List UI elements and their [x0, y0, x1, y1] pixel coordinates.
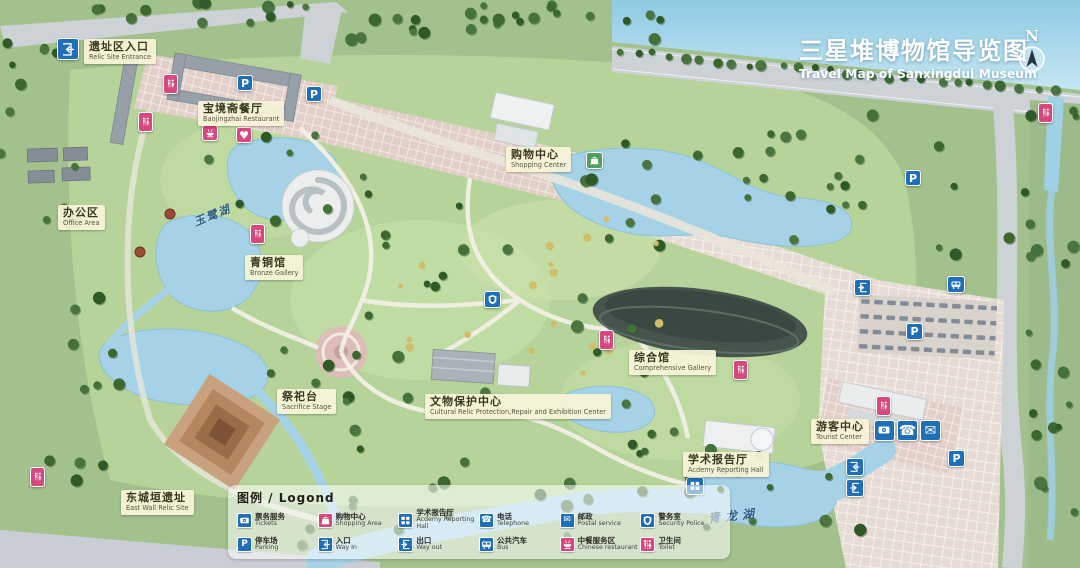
label-shopping-center: 购物中心Shopping Center — [506, 147, 571, 172]
legend-item-restaurant: 中餐服务区Chinese restaurant — [560, 532, 641, 556]
security-icon — [484, 291, 501, 308]
label-east-wall-relic-site-zh: 东城垣遗址 — [126, 492, 189, 505]
way-in-icon — [57, 38, 79, 60]
label-east-wall-relic-site: 东城垣遗址East Wall Relic Site — [121, 490, 194, 515]
label-shopping-center-zh: 购物中心 — [511, 149, 566, 162]
legend-item-en: Tickets — [255, 521, 285, 528]
label-relic-site-entrance-en: Relic Site Entrance — [89, 54, 151, 62]
parking-icon: P — [306, 86, 322, 102]
map-title-zh: 三星堆博物馆导览图 — [799, 31, 1037, 66]
legend-item-text: 票务服务Tickets — [255, 513, 285, 527]
legend-title: 图例 / Logond — [237, 489, 721, 506]
label-office-area-en: Office Area — [63, 220, 100, 228]
label-shopping-center-en: Shopping Center — [511, 162, 566, 170]
label-tourist-center-zh: 游客中心 — [816, 421, 864, 434]
label-bronze-gallery: 青铜馆Bronze Gallery — [245, 255, 303, 280]
legend-item-text: 警务室Security Police — [658, 513, 704, 527]
toilet-icon — [599, 330, 614, 350]
label-tourist-center: 游客中心Tourist Center — [811, 419, 869, 444]
heart-icon: ♥ — [236, 127, 252, 143]
legend-item-en: Toilet — [658, 545, 681, 552]
legend-item-en: Parking — [255, 545, 278, 552]
legend-item-bus: 公共汽车Bus — [479, 532, 560, 556]
parking-icon: P — [237, 75, 253, 91]
legend-items: 票务服务Tickets购物中心Shopping Area学术报告厅Acdemy … — [237, 508, 721, 556]
label-comprehensive-gallery: 综合馆Comprehensive Gallery — [629, 350, 716, 375]
toilet-icon — [640, 537, 655, 552]
toilet-icon — [163, 74, 178, 94]
label-bronze-gallery-zh: 青铜馆 — [250, 257, 298, 270]
label-east-wall-relic-site-en: East Wall Relic Site — [126, 505, 189, 513]
label-relic-site-entrance: 遗址区入口Relic Site Entrance — [84, 39, 156, 64]
north-indicator: N — [1016, 27, 1048, 77]
way-in-icon — [846, 458, 864, 476]
legend-panel: 图例 / Logond 票务服务Tickets购物中心Shopping Area… — [228, 485, 730, 559]
parking-icon: P — [237, 537, 252, 552]
phone-icon: ☎ — [897, 420, 918, 441]
label-bronze-gallery-en: Bronze Gallery — [250, 270, 298, 278]
legend-item-academy: 学术报告厅Acdemy Reporting Hall — [398, 508, 479, 532]
legend-item-text: 卫生间Toilet — [658, 537, 681, 551]
shopping-icon — [586, 152, 603, 169]
tickets-icon — [874, 420, 895, 441]
legend-item-en: Bus — [497, 545, 527, 552]
legend-item-tickets: 票务服务Tickets — [237, 508, 318, 532]
way-out-icon — [846, 479, 864, 497]
way-out-icon — [854, 279, 871, 296]
way-in-icon — [318, 537, 333, 552]
bus-icon — [947, 276, 965, 293]
label-baojingzhai-restaurant-en: Baojingzhai Restaurant — [203, 116, 279, 124]
map-title-en: Travel Map of Sanxingdui Museum — [799, 67, 1037, 81]
legend-item-en: Chinese restaurant — [578, 545, 638, 552]
label-comprehensive-gallery-zh: 综合馆 — [634, 352, 711, 365]
north-label: N — [1016, 27, 1048, 45]
legend-item-text: 停车场Parking — [255, 537, 278, 551]
legend-item-en: Shopping Area — [336, 521, 382, 528]
legend-item-parking: P停车场Parking — [237, 532, 318, 556]
legend-item-en: Security Police — [658, 521, 704, 528]
legend-item-en: Postal service — [578, 521, 621, 528]
label-baojingzhai-restaurant: 宝境斋餐厅Baojingzhai Restaurant — [198, 101, 284, 126]
legend-item-en: Telephone — [497, 521, 529, 528]
label-relic-site-entrance-zh: 遗址区入口 — [89, 41, 151, 54]
legend-item-text: 邮政Postal service — [578, 513, 621, 527]
label-sacrifice-stage: 祭祀台Sacrifice Stage — [277, 389, 336, 414]
legend-item-way-in: 入口Way In — [318, 532, 399, 556]
parking-icon: P — [905, 170, 921, 186]
restaurant-icon — [202, 125, 218, 141]
legend-item-text: 购物中心Shopping Area — [336, 513, 382, 527]
label-sacrifice-stage-en: Sacrifice Stage — [282, 404, 331, 412]
toilet-icon — [733, 360, 748, 380]
label-baojingzhai-restaurant-zh: 宝境斋餐厅 — [203, 103, 279, 116]
parking-icon: P — [948, 450, 965, 467]
way-out-icon — [398, 537, 413, 552]
label-academy-reporting-hall: 学术报告厅Acdemy Reporting Hall — [683, 452, 769, 477]
toilet-icon — [1038, 103, 1053, 123]
legend-item-text: 出口Way out — [416, 537, 442, 551]
label-tourist-center-en: Tourist Center — [816, 434, 864, 442]
bus-icon — [479, 537, 494, 552]
legend-item-en: Way out — [416, 545, 442, 552]
map-title: 三星堆博物馆导览图 Travel Map of Sanxingdui Museu… — [799, 31, 1037, 81]
toilet-icon — [138, 112, 153, 132]
compass-icon — [1018, 45, 1046, 73]
legend-item-text: 入口Way In — [336, 537, 357, 551]
shopping-icon — [318, 513, 333, 528]
label-office-area-zh: 办公区 — [63, 207, 100, 220]
map-canvas: 三星堆博物馆导览图 Travel Map of Sanxingdui Museu… — [0, 0, 1080, 568]
legend-item-phone: ☎电话Telephone — [479, 508, 560, 532]
map-base — [0, 0, 1080, 568]
label-cultural-relic-protection-center-zh: 文物保护中心 — [430, 396, 606, 409]
legend-item-text: 中餐服务区Chinese restaurant — [578, 537, 638, 551]
phone-icon: ☎ — [479, 513, 494, 528]
parking-icon: P — [906, 323, 923, 340]
label-cultural-relic-protection-center-en: Cultural Relic Protection,Repair and Exh… — [430, 409, 606, 417]
mail-icon: ✉ — [920, 420, 941, 441]
academy-icon — [398, 513, 413, 528]
legend-item-en: Acdemy Reporting Hall — [416, 517, 479, 530]
label-sacrifice-stage-zh: 祭祀台 — [282, 391, 331, 404]
label-academy-reporting-hall-zh: 学术报告厅 — [688, 454, 764, 467]
legend-item-way-out: 出口Way out — [398, 532, 479, 556]
label-comprehensive-gallery-en: Comprehensive Gallery — [634, 365, 711, 373]
legend-item-security: 警务室Security Police — [640, 508, 721, 532]
label-cultural-relic-protection-center: 文物保护中心Cultural Relic Protection,Repair a… — [425, 394, 611, 419]
mail-icon: ✉ — [560, 513, 575, 528]
toilet-icon — [30, 467, 45, 487]
legend-item-text: 学术报告厅Acdemy Reporting Hall — [416, 509, 479, 530]
security-icon — [640, 513, 655, 528]
toilet-icon — [250, 224, 265, 244]
legend-item-toilet: 卫生间Toilet — [640, 532, 721, 556]
restaurant-icon — [560, 537, 575, 552]
tickets-icon — [237, 513, 252, 528]
label-office-area: 办公区Office Area — [58, 205, 105, 230]
label-academy-reporting-hall-en: Acdemy Reporting Hall — [688, 467, 764, 475]
legend-item-text: 电话Telephone — [497, 513, 529, 527]
legend-item-text: 公共汽车Bus — [497, 537, 527, 551]
legend-item-shopping: 购物中心Shopping Area — [318, 508, 399, 532]
toilet-icon — [876, 396, 891, 416]
legend-item-en: Way In — [336, 545, 357, 552]
legend-item-mail: ✉邮政Postal service — [560, 508, 641, 532]
